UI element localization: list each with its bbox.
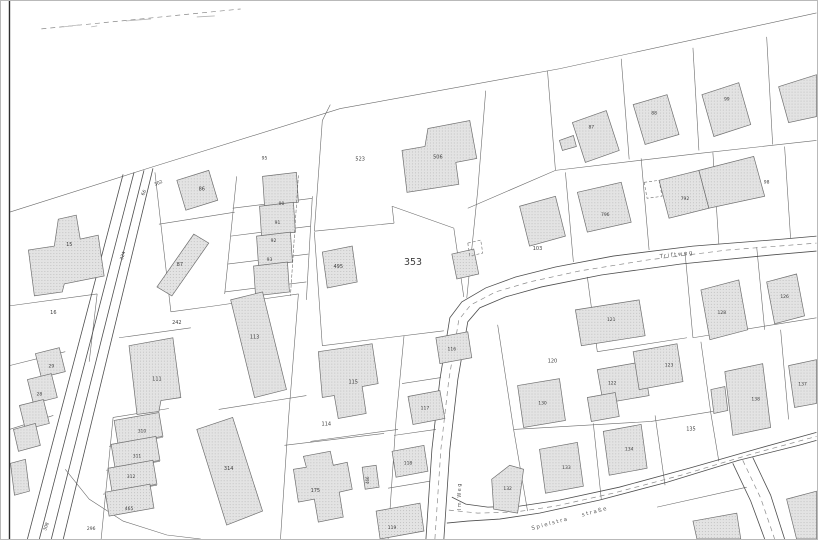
boundary-line xyxy=(641,158,649,250)
parcel-label: 495 xyxy=(334,264,343,270)
boundary-line xyxy=(388,481,430,488)
parcel-label: 133 xyxy=(562,465,571,471)
building-footprint xyxy=(452,249,479,279)
building-footprint xyxy=(633,95,679,145)
boundary-line xyxy=(392,206,454,228)
building-footprint xyxy=(257,232,293,266)
building-footprint xyxy=(702,83,751,137)
boundary-line xyxy=(306,196,312,300)
boundary-line xyxy=(468,140,817,208)
parcel-label: 117 xyxy=(421,405,430,411)
parcel-label: 118 xyxy=(404,460,413,466)
road-edge xyxy=(753,457,785,539)
road-centerline xyxy=(743,460,775,539)
tick-mark xyxy=(197,16,215,17)
building-footprint xyxy=(572,111,619,163)
boundary-line xyxy=(565,172,573,262)
boundary-line xyxy=(314,223,394,231)
boundary-line xyxy=(159,212,235,224)
building-footprint xyxy=(779,75,817,123)
parcel-label: 324 xyxy=(119,251,127,261)
tick-mark xyxy=(63,25,79,27)
parcel-label: 128 xyxy=(718,310,727,316)
parcel-label: 114 xyxy=(322,421,331,427)
boundary-line xyxy=(310,429,398,441)
map-canvas: 3535235064958687959091929315163246630224… xyxy=(1,1,817,539)
building-footprint xyxy=(10,459,29,495)
boundary-line xyxy=(402,378,441,384)
parcel-label: 465 xyxy=(125,506,134,512)
parcel-label: 792 xyxy=(681,196,690,202)
parcel-label: 92 xyxy=(271,238,277,244)
building-footprint xyxy=(13,423,40,451)
parcel-label: 119 xyxy=(388,525,397,531)
boundary-line xyxy=(9,294,97,306)
parcel-label: 138 xyxy=(751,397,760,403)
tick-mark xyxy=(126,19,151,21)
parcel-label: 113 xyxy=(250,335,259,341)
building-footprint xyxy=(577,182,631,232)
parcel-label: 98 xyxy=(764,179,770,185)
boundary-line xyxy=(314,121,322,232)
building-footprint xyxy=(699,156,765,208)
boundary-line xyxy=(693,48,699,151)
parcel-label: 137 xyxy=(798,382,807,388)
parcel-label: 135 xyxy=(686,426,695,432)
building-footprint xyxy=(231,292,287,398)
boundary-line xyxy=(314,232,322,346)
parcel-label: 120 xyxy=(548,359,557,365)
parcel-label: 90 xyxy=(279,201,285,207)
boundary-line xyxy=(89,294,97,362)
building-footprint xyxy=(633,344,683,390)
parcel-label: 123 xyxy=(665,363,674,369)
parcel-label: 16 xyxy=(50,310,56,316)
tick-mark xyxy=(91,26,97,27)
parcel-label: 116 xyxy=(448,347,457,353)
boundary-line xyxy=(219,396,307,410)
boundary-line xyxy=(767,37,773,145)
boundary-line xyxy=(394,429,436,435)
boundary-line xyxy=(621,59,629,160)
parcel-label: 28 xyxy=(37,392,43,398)
boundary-line xyxy=(785,146,791,238)
street-name: Triftweg xyxy=(658,250,694,260)
parcel-label: 87 xyxy=(588,125,594,131)
parcel-label: 506 xyxy=(433,154,442,160)
parcel-label: 175 xyxy=(311,488,320,494)
building-footprint xyxy=(263,172,299,206)
parcel-label: 111 xyxy=(152,377,161,383)
building-footprint xyxy=(35,348,65,378)
cadastral-map: 3535235064958687959091929315163246630224… xyxy=(0,0,818,540)
boundary-line xyxy=(685,252,693,338)
building-footprint xyxy=(559,136,576,151)
buildings xyxy=(10,75,816,539)
parcel-label: 121 xyxy=(607,317,616,323)
parcel-label: 523 xyxy=(355,156,364,162)
parcel-label: 122 xyxy=(608,381,617,387)
boundary-line xyxy=(757,247,765,330)
building-footprint xyxy=(787,491,817,539)
parcel-label: 296 xyxy=(87,526,96,532)
parcel-label: 314 xyxy=(224,466,233,472)
parcel-label: 242 xyxy=(172,320,181,326)
boundary-line xyxy=(322,105,330,121)
building-footprint xyxy=(260,202,296,236)
boundary-line xyxy=(655,415,665,485)
building-footprint xyxy=(27,374,57,404)
building-footprint xyxy=(587,393,619,422)
parcel-label: 130 xyxy=(538,400,547,406)
tick-marks xyxy=(63,16,214,27)
parcel-label: 312 xyxy=(127,474,136,480)
building-footprint xyxy=(293,451,352,522)
parcel-label: 66 xyxy=(140,189,148,197)
parcel-label: 15 xyxy=(66,242,72,248)
parcel-label: 87 xyxy=(177,262,183,268)
boundary-line xyxy=(280,294,298,539)
parcel-label: 93 xyxy=(267,257,273,263)
boundary-line xyxy=(322,331,444,346)
boundary-line xyxy=(392,206,394,223)
boundary-line xyxy=(593,423,601,499)
building-footprint xyxy=(725,364,771,436)
parcel-label: 466 xyxy=(365,476,370,484)
parcel-label-main-353: 353 xyxy=(404,257,422,268)
building-footprint xyxy=(376,503,424,539)
parcel-label: 88 xyxy=(651,111,657,117)
building-outline-dashed xyxy=(644,180,662,198)
boundary-line xyxy=(225,176,237,294)
parcel-label: 796 xyxy=(601,212,610,218)
parcel-label: 95 xyxy=(262,155,268,161)
boundary-line xyxy=(284,433,384,445)
parcel-label: 302 xyxy=(153,179,163,188)
building-footprint xyxy=(693,513,741,539)
parcel-label: 115 xyxy=(348,380,357,386)
street-name: Spielstra xyxy=(531,516,570,532)
building-footprint xyxy=(711,387,728,414)
parcel-label: 91 xyxy=(275,220,281,226)
building-footprint xyxy=(177,170,218,210)
building-footprint xyxy=(254,262,290,296)
street-name: Im Weg xyxy=(457,482,463,510)
parcel-label: 311 xyxy=(133,453,142,459)
parcel-label: 134 xyxy=(625,446,634,452)
boundary-line xyxy=(119,328,191,338)
boundary-line xyxy=(547,71,555,171)
street-name: straße xyxy=(581,506,609,519)
parcel-label: 103 xyxy=(533,246,542,252)
parcel-label: 310 xyxy=(138,428,147,434)
parcel-label: 126 xyxy=(780,294,789,300)
boundary-line xyxy=(781,330,789,420)
building-footprint xyxy=(520,196,566,246)
building-footprint xyxy=(28,215,104,296)
parcel-label: 132 xyxy=(503,486,512,492)
boundary-line xyxy=(657,487,747,507)
parcel-label: 29 xyxy=(48,364,54,370)
parcel-label: 86 xyxy=(199,186,205,192)
parcel-label: 99 xyxy=(724,97,730,103)
